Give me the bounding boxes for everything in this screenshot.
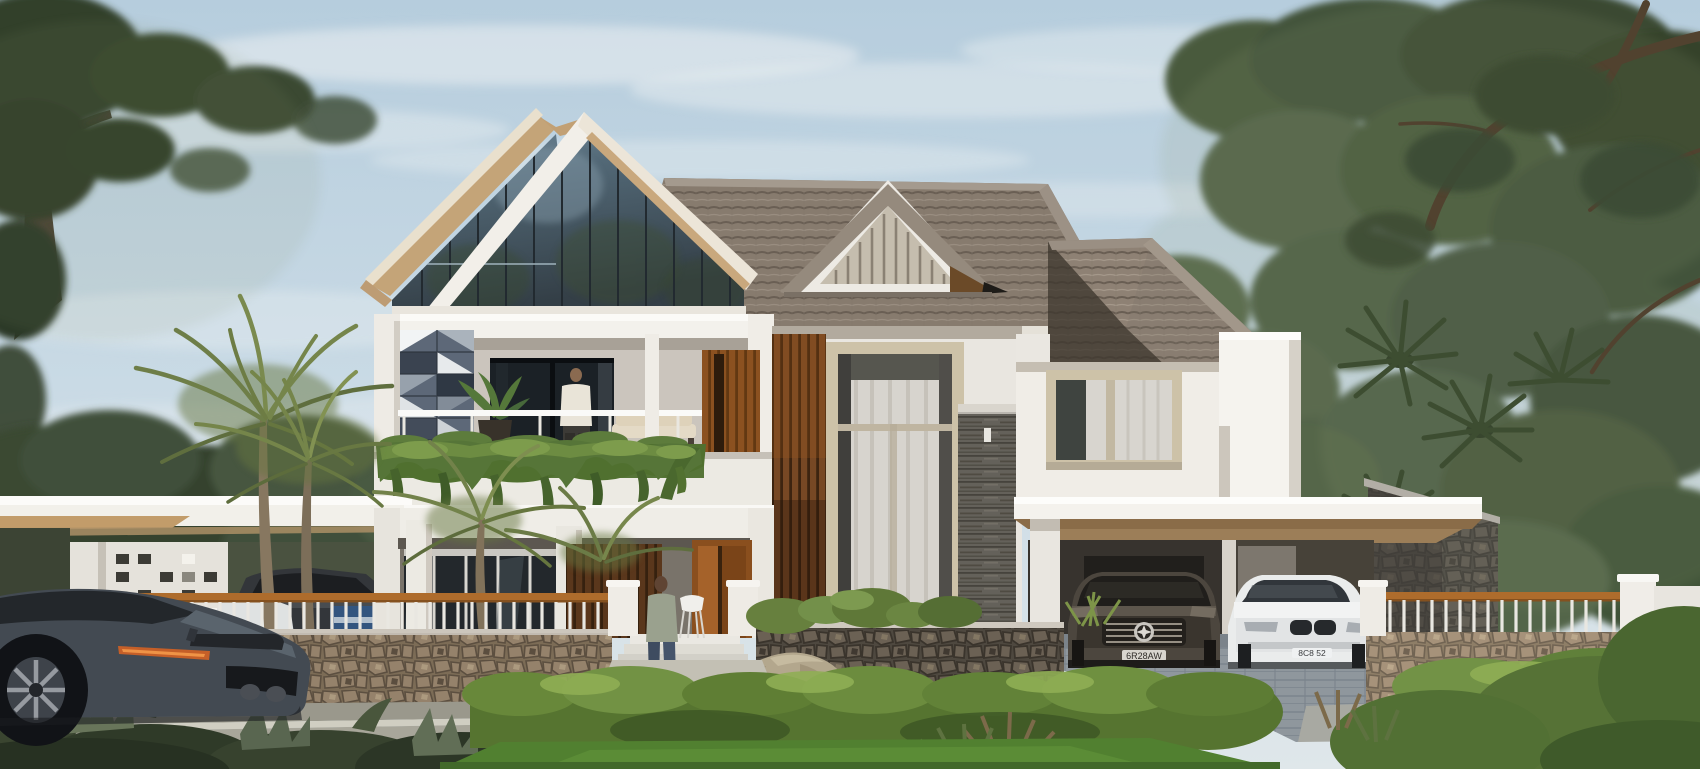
svg-text:8C8 52: 8C8 52: [1298, 648, 1326, 658]
svg-text:6R28AW: 6R28AW: [1126, 651, 1162, 661]
